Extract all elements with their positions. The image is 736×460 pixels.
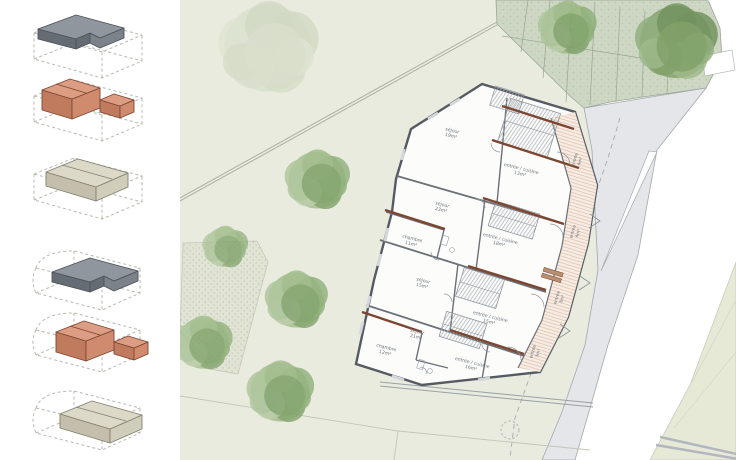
- massing-diagram-6: [12, 378, 162, 456]
- site-plan: séjour19m²entrée / cuisine13m²séjour23m²…: [180, 0, 736, 460]
- screenshot-root: séjour19m²entrée / cuisine13m²séjour23m²…: [0, 0, 736, 460]
- massing-diagram-2: [12, 68, 162, 146]
- site-plan-area: séjour19m²entrée / cuisine13m²séjour23m²…: [180, 0, 736, 460]
- massing-diagram-5: [12, 300, 162, 378]
- massing-diagram-column: [0, 0, 180, 460]
- massing-diagram-3: [12, 146, 162, 224]
